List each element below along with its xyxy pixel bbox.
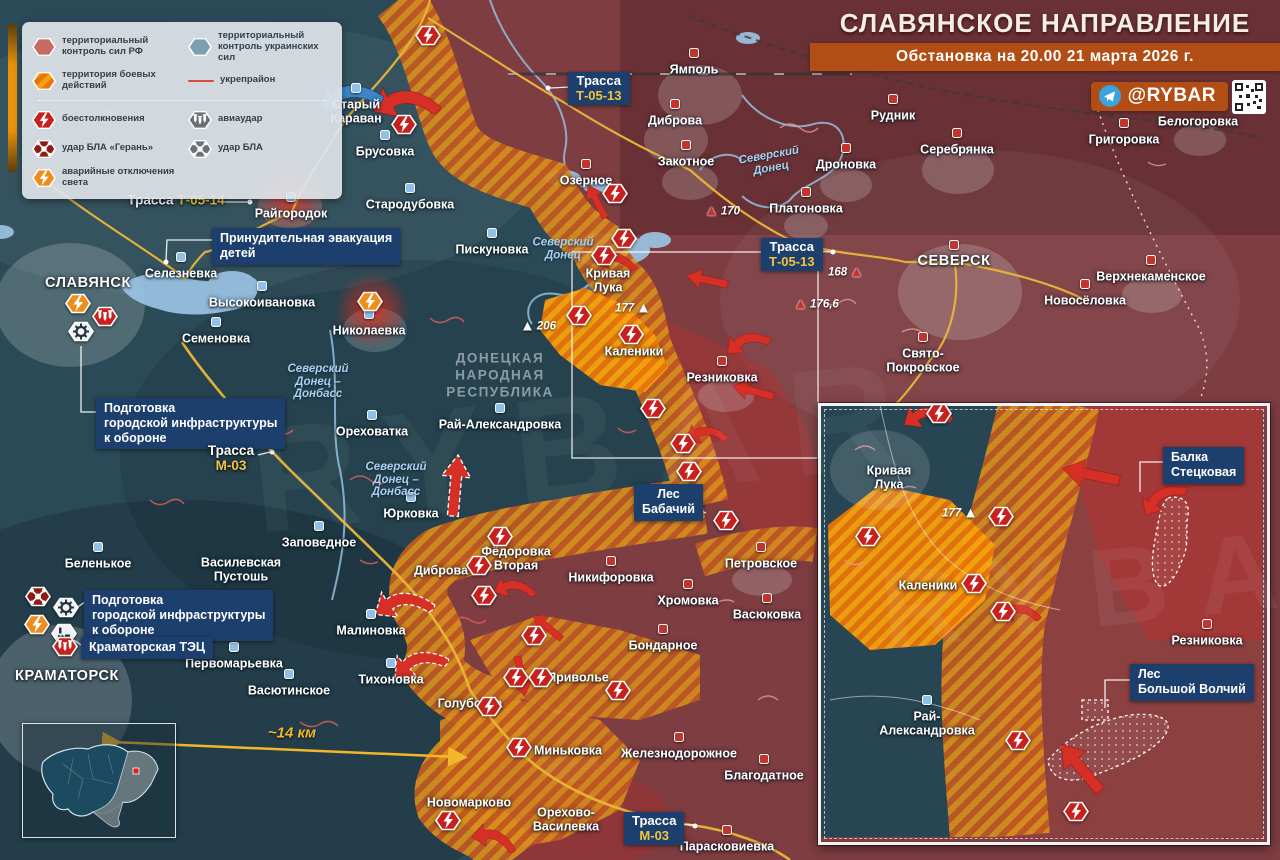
legend-item-label: авиаудар <box>218 114 262 125</box>
legend-item: аварийные отключения света <box>32 166 184 190</box>
legend-item-label: территориальный контроль сил РФ <box>62 36 184 58</box>
legend-item: удар БЛА «Герань» <box>32 137 184 161</box>
legend-item: территориальный контроль украинских сил <box>188 31 332 64</box>
power-icon <box>32 166 56 190</box>
hex-ua-icon <box>188 35 212 59</box>
airstrike-gray-icon <box>188 108 212 132</box>
drone-geran-icon <box>32 137 56 161</box>
legend-item-label: территориальный контроль украинских сил <box>218 31 332 64</box>
legend-item: территория боевых действий <box>32 69 184 93</box>
legend-item: авиаудар <box>188 108 332 132</box>
telegram-icon <box>1099 85 1121 107</box>
legend-divider <box>38 100 326 101</box>
telegram-badge: @RYBAR <box>1091 82 1228 111</box>
legend-item: удар БЛА <box>188 137 332 161</box>
hex-battle-icon <box>32 69 56 93</box>
legend-item-label: аварийные отключения света <box>62 167 184 189</box>
telegram-handle: @RYBAR <box>1128 85 1216 107</box>
legend-panel: территориальный контроль сил РФтерритори… <box>22 22 342 199</box>
drone-gray-icon <box>188 137 212 161</box>
map-canvas: RYBAR RYBAR Старый КараванБрусовкаДибров… <box>0 0 1280 860</box>
ukrep-line-icon <box>188 80 214 83</box>
legend-item-label: укрепрайон <box>220 75 275 86</box>
clash-icon <box>32 108 56 132</box>
hex-ru-icon <box>32 35 56 59</box>
legend-item: территориальный контроль сил РФ <box>32 35 184 59</box>
legend-item-label: удар БЛА «Герань» <box>62 143 153 154</box>
inset-map-frame <box>818 403 1270 845</box>
legend-item-label: удар БЛА <box>218 143 263 154</box>
legend-item-label: боестолкновения <box>62 114 145 125</box>
legend-item: боестолкновения <box>32 108 184 132</box>
legend-item-label: территория боевых действий <box>62 70 184 92</box>
ukraine-minimap <box>22 723 176 838</box>
legend-item: укрепрайон <box>188 75 332 86</box>
